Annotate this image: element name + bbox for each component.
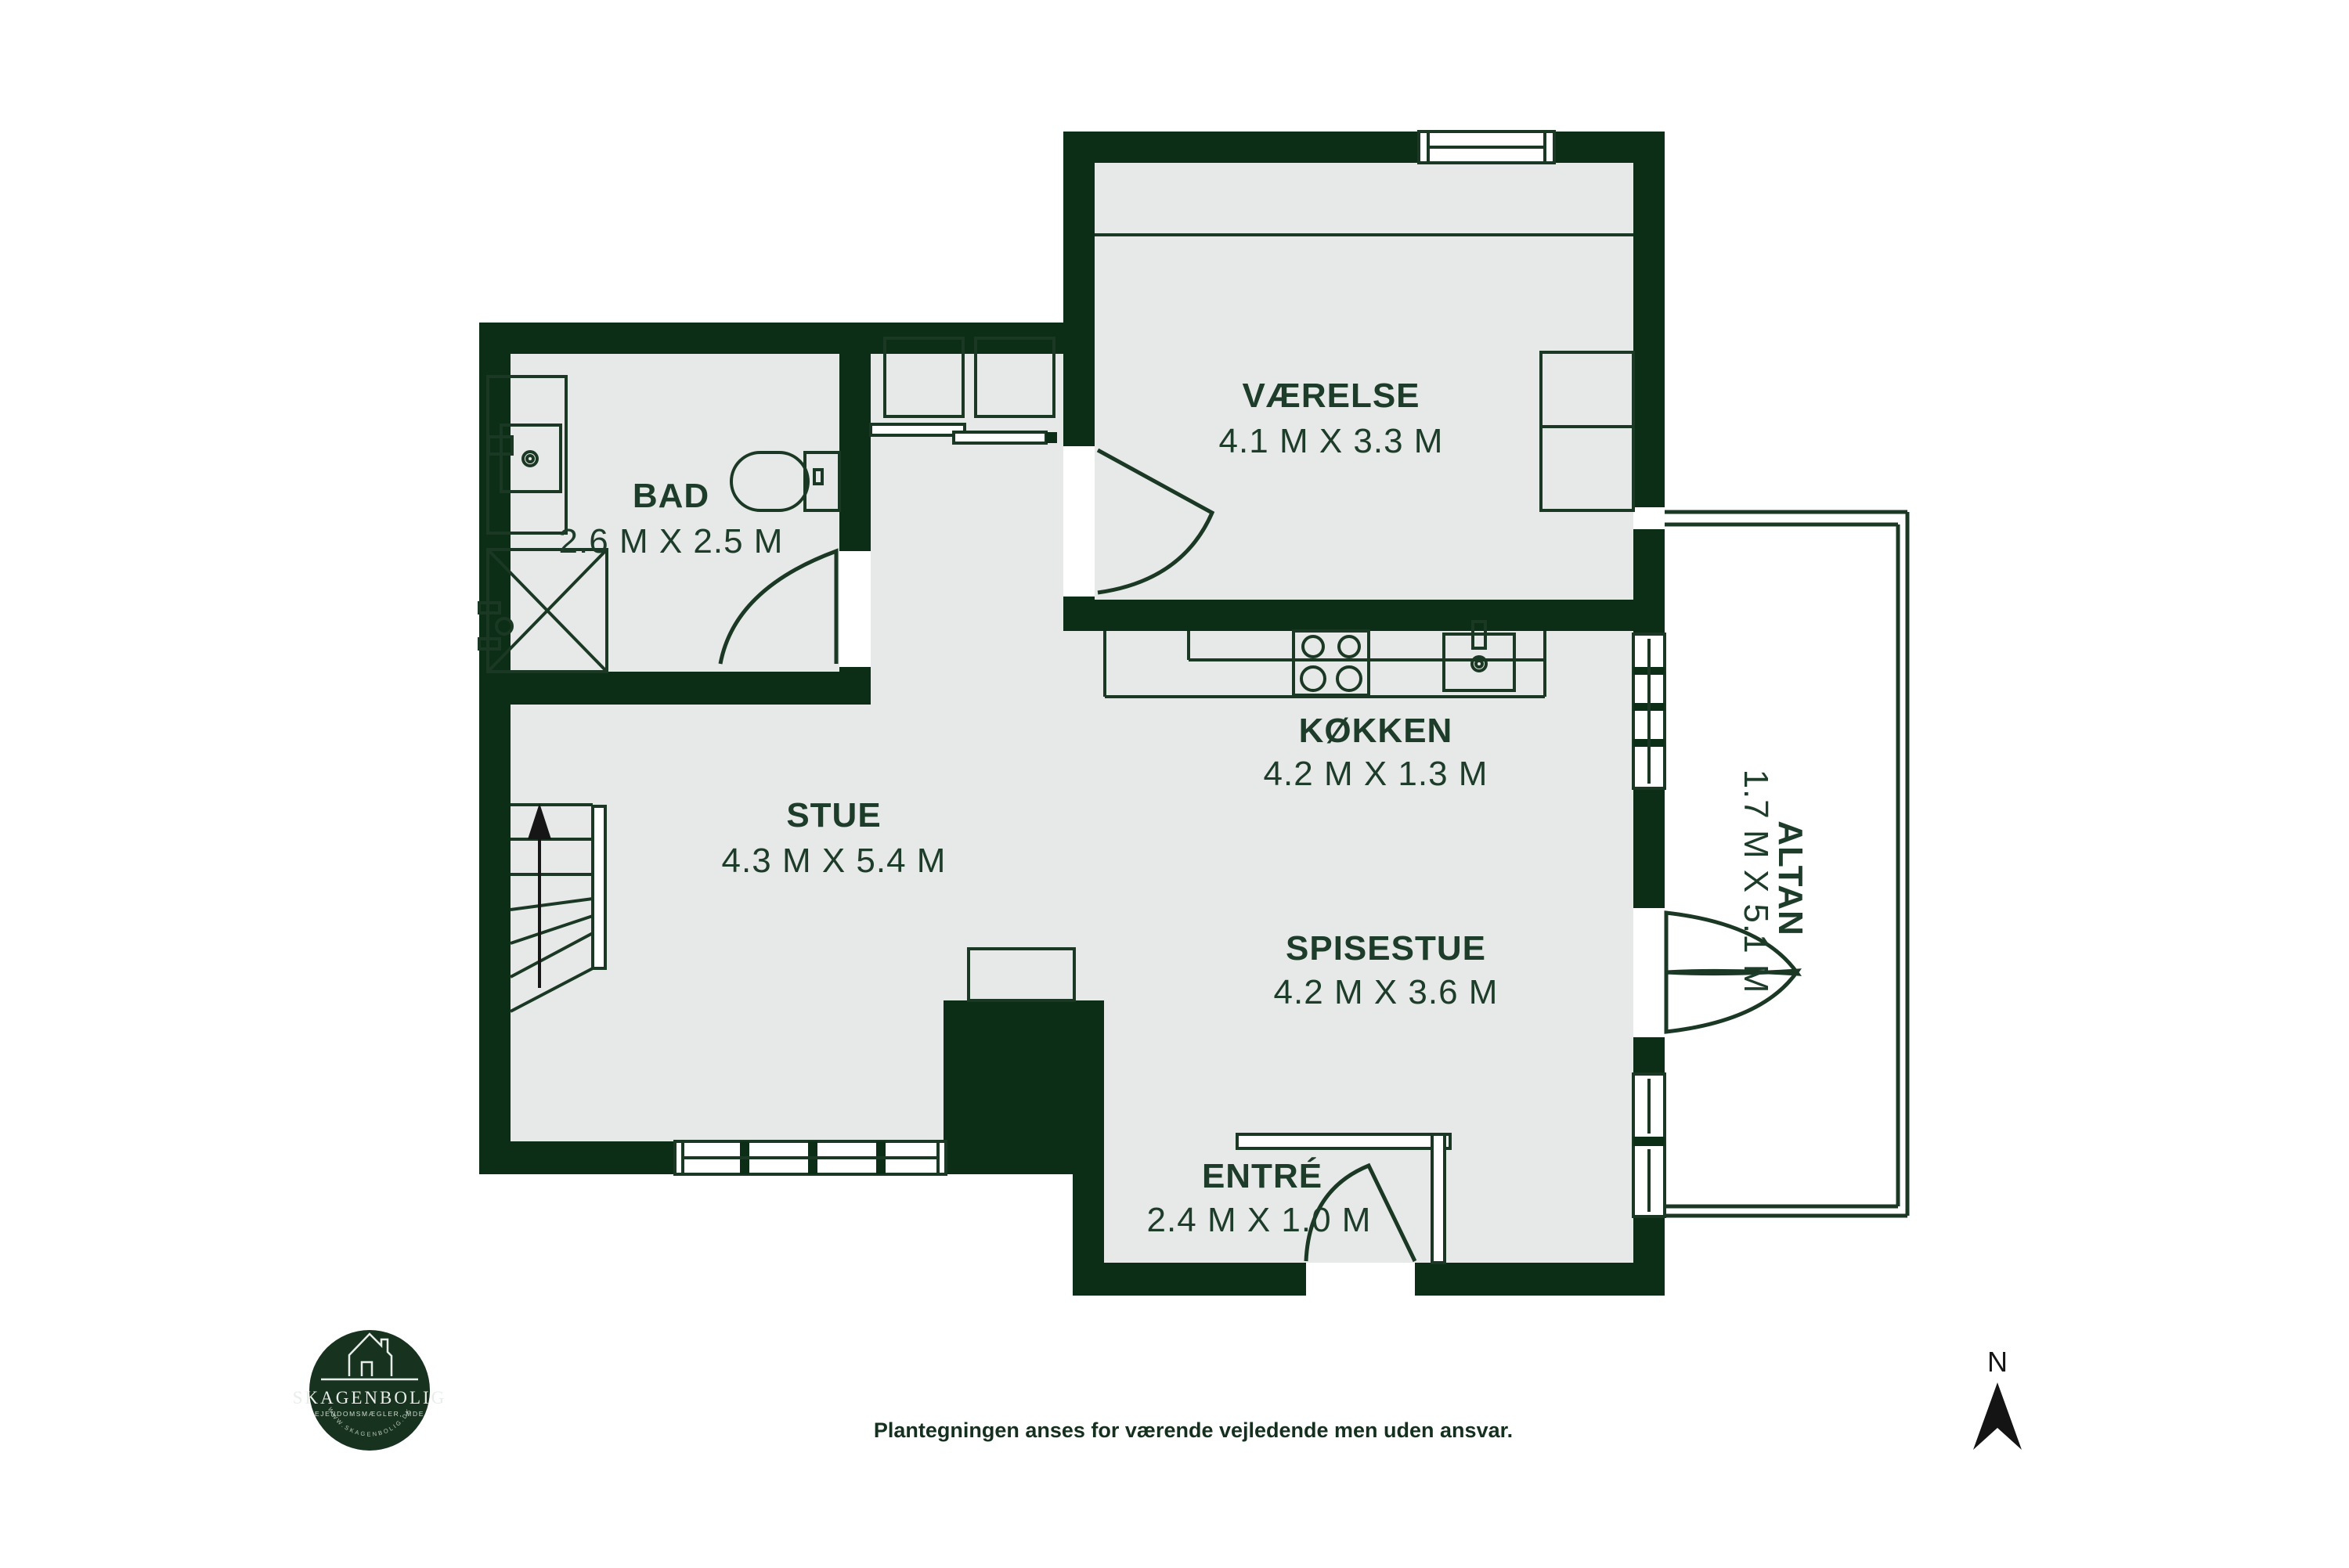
- sliding-door-right: [954, 432, 1046, 443]
- wall-entre-west: [1073, 1000, 1104, 1296]
- wall-vaerelse-south: [1063, 600, 1665, 631]
- svg-text:ALTAN: ALTAN: [1771, 820, 1810, 936]
- room-label-altan: ALTAN 1.7 M X 5.1 M: [1737, 770, 1810, 994]
- door-gap-altan: [1633, 908, 1665, 1037]
- agency-logo: SKAGENBOLIG EJENDOMSMÆGLER, MDE WWW.SKAG…: [293, 1330, 447, 1451]
- svg-text:4.2 M X 1.3 M: 4.2 M X 1.3 M: [1264, 755, 1488, 793]
- svg-text:4.3 M X 5.4 M: 4.3 M X 5.4 M: [722, 842, 947, 880]
- svg-text:2.4 M X 1.0 M: 2.4 M X 1.0 M: [1147, 1201, 1372, 1239]
- svg-text:4.1 M X 3.3 M: 4.1 M X 3.3 M: [1219, 422, 1444, 460]
- svg-text:BAD: BAD: [633, 477, 709, 515]
- door-gap-vaerelse: [1063, 446, 1095, 597]
- north-compass: N: [1973, 1346, 2022, 1450]
- wall-bad-south: [479, 672, 871, 705]
- door-arc-altan-lower: [1666, 971, 1798, 1032]
- altan-wall-notch: [1633, 507, 1665, 529]
- door-gap-bad: [839, 551, 871, 667]
- door-gap-entre: [1306, 1263, 1415, 1296]
- floor-plan-drawing: VÆRELSE 4.1 M X 3.3 M BAD 2.6 M X 2.5 M …: [0, 0, 2349, 1568]
- window-band-east-upper: [1633, 634, 1665, 788]
- floor-plan-page: VÆRELSE 4.1 M X 3.3 M BAD 2.6 M X 2.5 M …: [0, 0, 2349, 1568]
- stair-railing: [593, 806, 605, 968]
- wall-vaerelse-north: [1063, 132, 1665, 163]
- logo-name: SKAGENBOLIG: [293, 1388, 447, 1408]
- svg-text:KØKKEN: KØKKEN: [1299, 712, 1453, 750]
- svg-text:VÆRELSE: VÆRELSE: [1242, 377, 1420, 415]
- wall-vaerelse-east: [1633, 132, 1665, 631]
- svg-text:4.2 M X 3.6 M: 4.2 M X 3.6 M: [1274, 973, 1499, 1011]
- svg-text:ENTRÉ: ENTRÉ: [1202, 1156, 1322, 1195]
- svg-text:1.7 M X 5.1 M: 1.7 M X 5.1 M: [1737, 770, 1775, 994]
- sliding-door-left: [871, 424, 965, 435]
- svg-text:2.6 M X 2.5 M: 2.6 M X 2.5 M: [559, 522, 784, 561]
- svg-text:STUE: STUE: [786, 796, 881, 834]
- window-band-east-lower: [1633, 1074, 1665, 1217]
- window-band-stue-south: [675, 1141, 946, 1174]
- north-label: N: [1987, 1346, 2008, 1378]
- north-arrow-icon: [1973, 1382, 2022, 1450]
- disclaimer-text: Plantegningen anses for værende vejleden…: [874, 1418, 1513, 1442]
- window-vaerelse-north: [1419, 132, 1554, 163]
- svg-text:SPISESTUE: SPISESTUE: [1286, 929, 1486, 968]
- wall-west: [479, 323, 511, 1174]
